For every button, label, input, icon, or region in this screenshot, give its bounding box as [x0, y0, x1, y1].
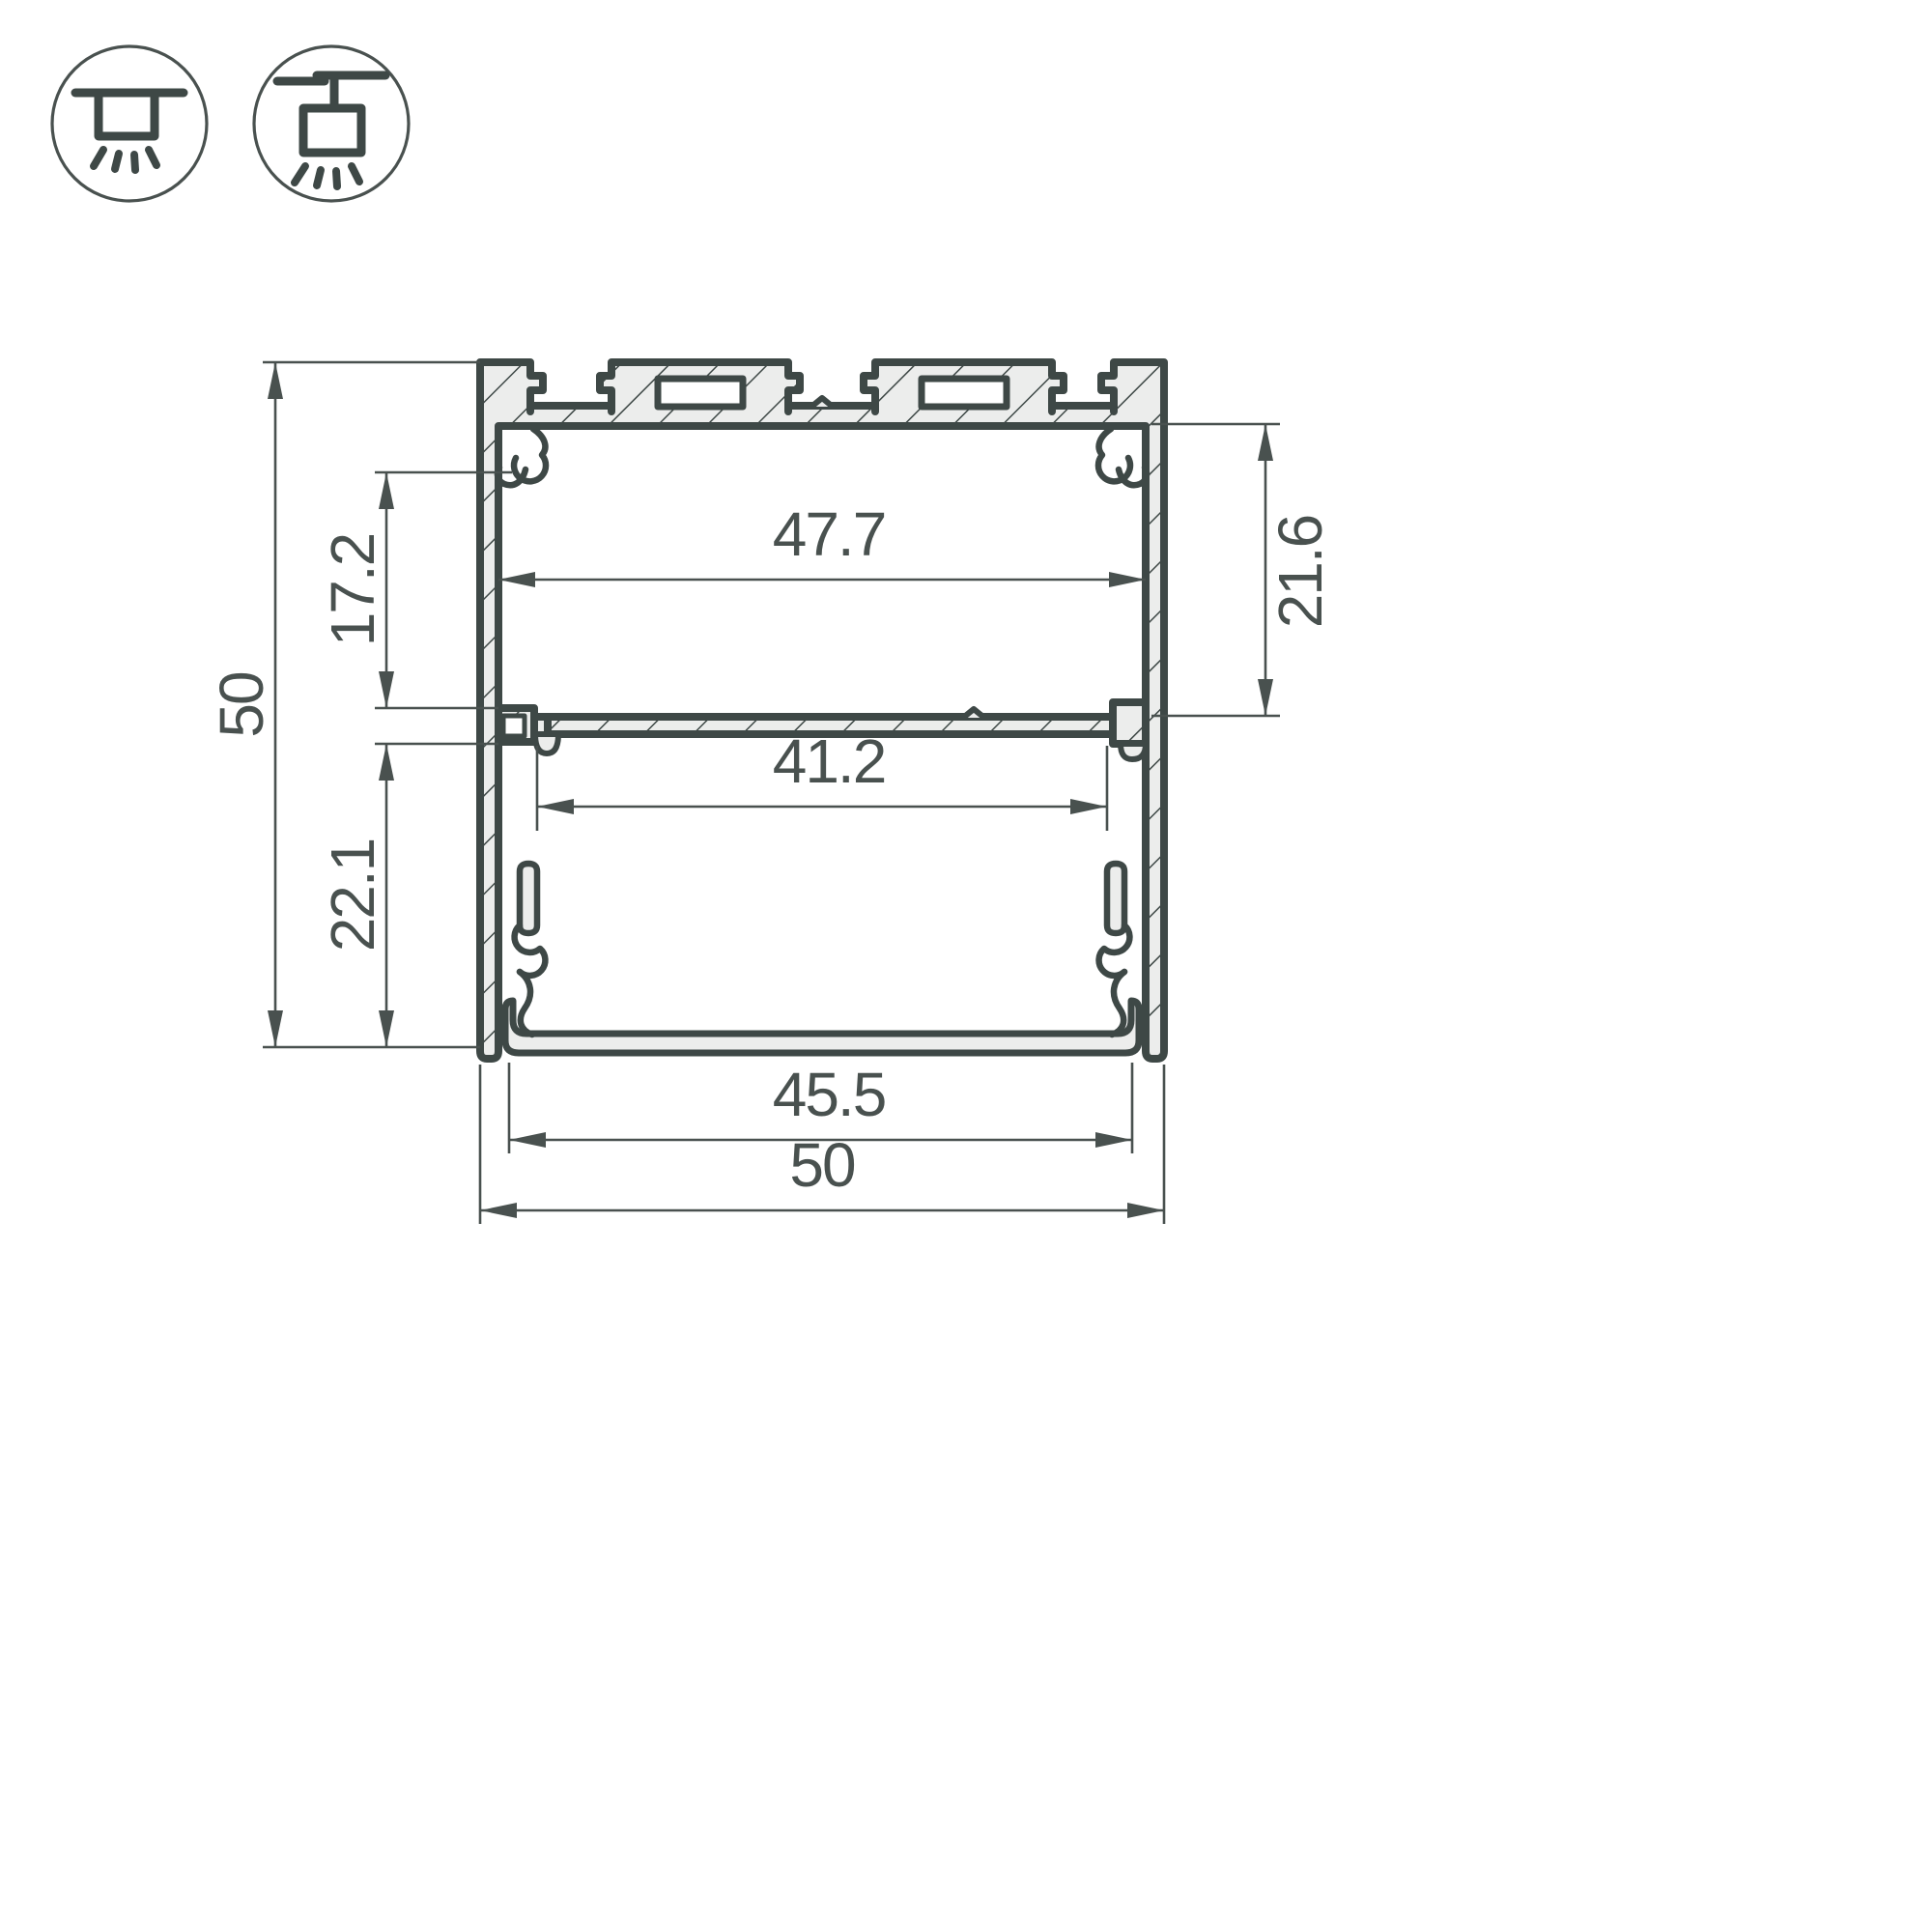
- cap-tooth-left-wall: [480, 362, 543, 412]
- break-mark-web: [811, 398, 833, 407]
- profile-cross-section: [480, 362, 1164, 1059]
- dim-upper-inner-height-label: 17.2: [318, 534, 387, 647]
- bottom-cover-plate: [505, 1001, 1139, 1053]
- technical-drawing: 50 17.2 22.1 47.7: [0, 0, 1932, 1932]
- cap-tooth-right-wall: [1101, 362, 1164, 412]
- dim-overall-width-label: 50: [789, 1130, 855, 1200]
- dim-lower-inner-height: 22.1: [318, 744, 498, 1047]
- dim-right-cavity-height: 21.6: [1151, 424, 1335, 716]
- dim-inner-width-top-label: 47.7: [773, 499, 886, 569]
- cap-tooth-b-void: [658, 379, 743, 407]
- dim-inner-width-lower-label: 41.2: [773, 726, 886, 796]
- pendant-mount-light-rays: [295, 166, 359, 186]
- cap-web: [480, 406, 1164, 426]
- divider-right-block: [1113, 702, 1146, 744]
- dim-inner-width-top: 47.7: [498, 499, 1146, 587]
- pendant-mount-icon: [254, 46, 409, 201]
- mounting-icons: [52, 46, 409, 201]
- dim-bottom-opening-width-label: 45.5: [773, 1060, 886, 1129]
- pendant-mount-icon-circle: [254, 46, 409, 201]
- pendant-mount-fixture-box: [303, 108, 361, 153]
- cap-tooth-c-void: [922, 379, 1007, 407]
- surface-mount-icon-circle: [52, 46, 207, 201]
- surface-mount-light-rays: [94, 150, 156, 170]
- dim-lower-inner-height-label: 22.1: [318, 839, 387, 952]
- dim-inner-width-lower: 41.2: [537, 726, 1107, 831]
- surface-mount-icon: [52, 46, 207, 201]
- divider-screw-notch: [503, 716, 525, 736]
- surface-mount-fixture-box: [99, 93, 155, 136]
- divider-right-bulge: [1121, 744, 1146, 759]
- dim-overall-height-label: 50: [207, 672, 276, 738]
- dim-right-cavity-height-label: 21.6: [1265, 516, 1335, 629]
- break-mark-divider: [963, 709, 984, 718]
- divider-left-bulge: [535, 734, 558, 753]
